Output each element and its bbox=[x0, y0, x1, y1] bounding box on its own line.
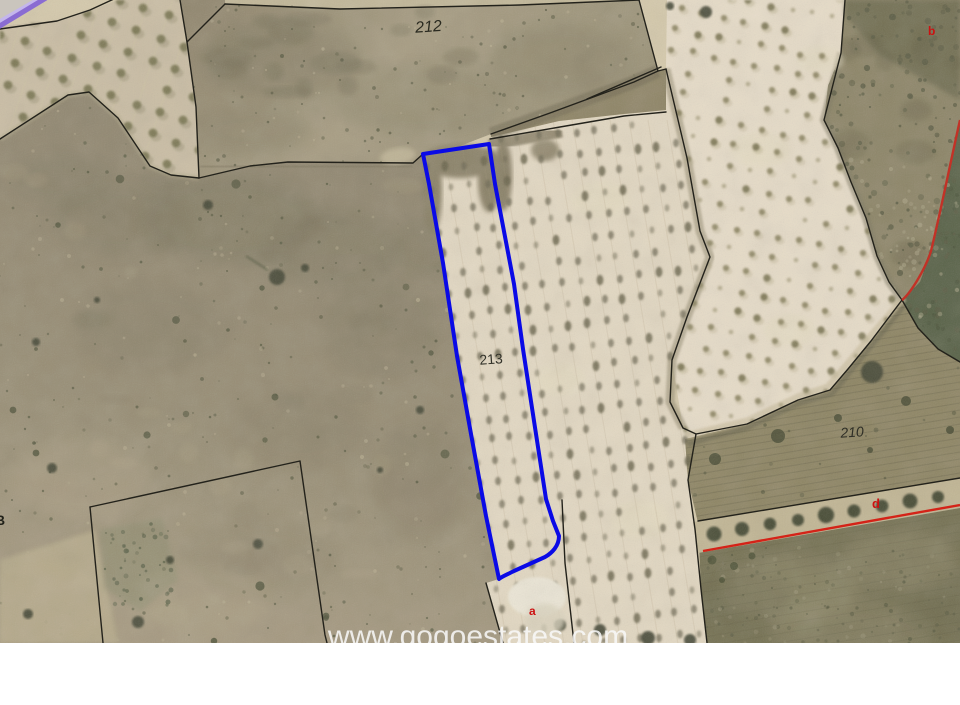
svg-text:B: B bbox=[0, 512, 5, 528]
svg-text:210: 210 bbox=[839, 423, 865, 441]
svg-text:d: d bbox=[872, 496, 880, 511]
svg-text:212: 212 bbox=[414, 18, 443, 37]
svg-text:213: 213 bbox=[479, 350, 504, 368]
svg-text:b: b bbox=[928, 24, 935, 38]
svg-text:a: a bbox=[529, 604, 536, 618]
